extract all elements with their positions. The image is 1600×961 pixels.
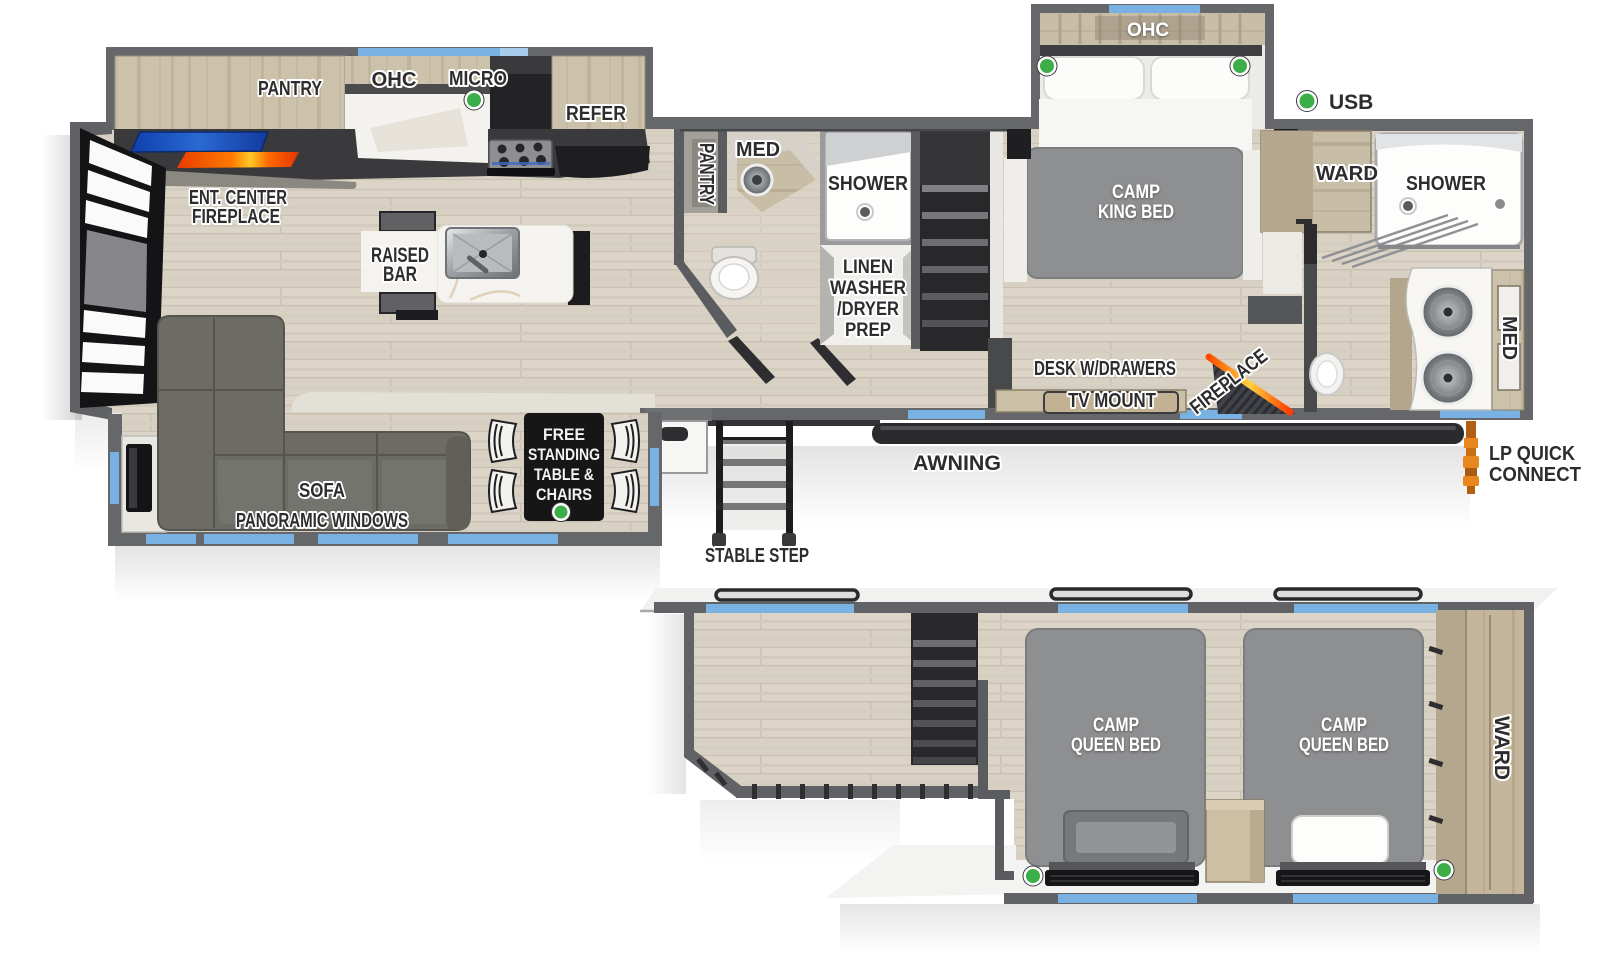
- svg-text:MED: MED: [736, 139, 780, 161]
- svg-text:REFER: REFER: [566, 103, 626, 125]
- svg-text:OHC: OHC: [1127, 20, 1169, 41]
- svg-text:WARD: WARD: [1316, 163, 1378, 185]
- svg-text:USB: USB: [1329, 91, 1373, 114]
- svg-text:LP QUICK: LP QUICK: [1489, 443, 1575, 465]
- svg-text:PANTRY: PANTRY: [258, 78, 323, 100]
- svg-text:FREE: FREE: [543, 425, 585, 444]
- svg-text:WASHER: WASHER: [830, 278, 906, 299]
- svg-text:CAMP: CAMP: [1093, 715, 1139, 736]
- svg-text:LINEN: LINEN: [843, 257, 893, 278]
- svg-text:PREP: PREP: [845, 320, 891, 341]
- svg-text:CAMP: CAMP: [1112, 182, 1160, 203]
- svg-text:WARD: WARD: [1490, 716, 1513, 780]
- svg-text:STABLE STEP: STABLE STEP: [705, 545, 809, 567]
- svg-text:CONNECT: CONNECT: [1489, 464, 1581, 486]
- svg-text:CHAIRS: CHAIRS: [536, 485, 592, 504]
- svg-text:SHOWER: SHOWER: [828, 173, 908, 195]
- svg-text:SOFA: SOFA: [299, 480, 345, 502]
- svg-text:STANDING: STANDING: [528, 445, 600, 464]
- svg-text:BAR: BAR: [383, 263, 417, 286]
- svg-text:CAMP: CAMP: [1321, 715, 1367, 736]
- svg-text:KING BED: KING BED: [1098, 202, 1174, 223]
- svg-text:PANTRY: PANTRY: [695, 143, 717, 206]
- svg-text:MED: MED: [1498, 316, 1520, 360]
- svg-text:QUEEN BED: QUEEN BED: [1299, 735, 1389, 756]
- svg-text:SHOWER: SHOWER: [1406, 173, 1486, 195]
- svg-text:FIREPLACE: FIREPLACE: [192, 206, 280, 228]
- svg-text:TV MOUNT: TV MOUNT: [1068, 390, 1156, 412]
- svg-text:/DRYER: /DRYER: [837, 299, 899, 320]
- svg-text:PANORAMIC WINDOWS: PANORAMIC WINDOWS: [236, 510, 408, 532]
- svg-text:TABLE &: TABLE &: [534, 465, 594, 484]
- svg-text:MICRO: MICRO: [449, 68, 507, 90]
- svg-text:DESK W/DRAWERS: DESK W/DRAWERS: [1034, 358, 1176, 380]
- svg-text:QUEEN BED: QUEEN BED: [1071, 735, 1161, 756]
- svg-text:OHC: OHC: [372, 69, 417, 91]
- svg-text:AWNING: AWNING: [913, 452, 1001, 475]
